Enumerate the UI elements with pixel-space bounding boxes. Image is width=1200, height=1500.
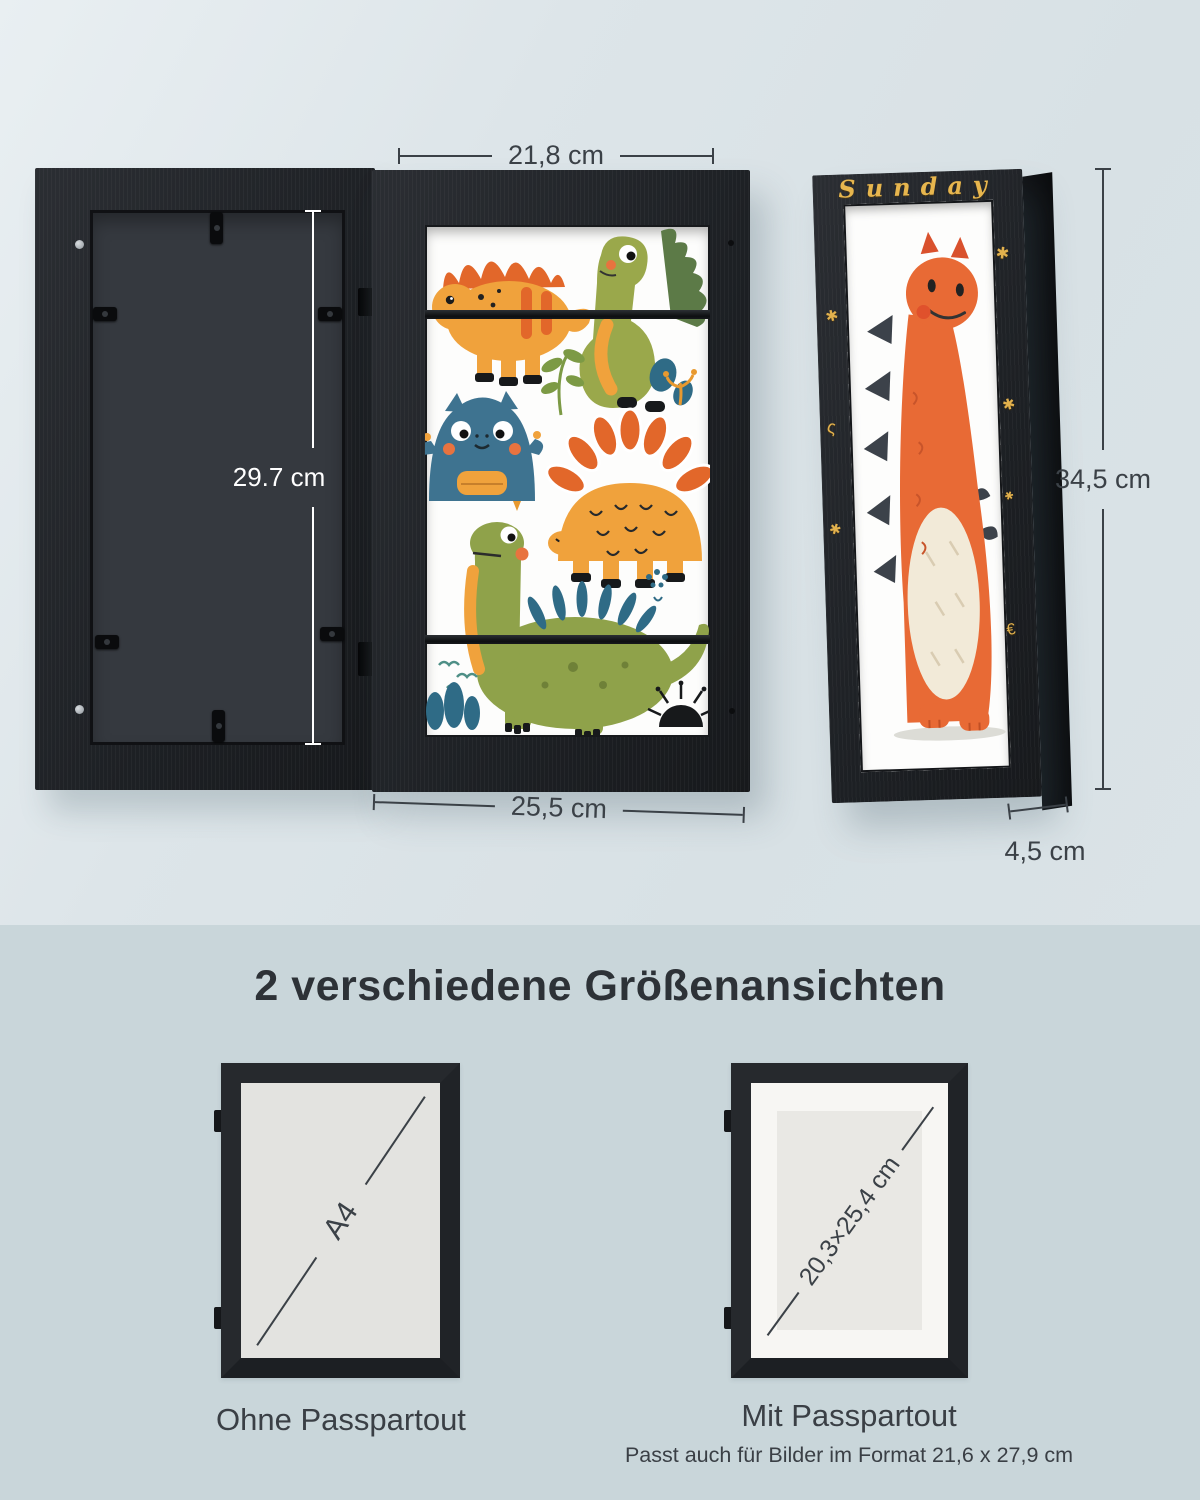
dimension-tick [743, 806, 746, 822]
dimension-tick [712, 148, 714, 164]
dimension-back-height: 29.7 cm [299, 210, 327, 745]
dimension-tick [305, 743, 321, 745]
dimension-inner-width: 21,8 cm [398, 140, 714, 171]
frame-side-front: Sunday ✱ ς ✱ ✱ ✱ ✱ € [812, 169, 1042, 803]
hinge-tab [724, 1110, 731, 1132]
clip-screw [327, 311, 333, 317]
dimension-line [1102, 170, 1104, 450]
clip-screw [216, 723, 222, 729]
dimension-inner-width-label: 21,8 cm [508, 140, 604, 171]
clip-screw [104, 639, 110, 645]
retainer-bar [425, 310, 710, 319]
a4-diagonal: A4 [243, 1087, 439, 1355]
frame-hole [729, 708, 735, 714]
gold-squiggle-doodle: ς [826, 416, 838, 438]
frame-without-mat: A4 [221, 1063, 460, 1378]
hinge-tab [724, 1307, 731, 1329]
dimension-line [623, 809, 743, 815]
caption-with-mat: Mit Passpartout [689, 1398, 1009, 1434]
retainer-bar [425, 635, 710, 644]
hinge-tab [214, 1110, 221, 1132]
caption-without-mat: Ohne Passpartout [171, 1402, 511, 1438]
magnet-pin [75, 240, 84, 249]
diagonal-line [364, 1096, 425, 1185]
gold-star-doodle: ✱ [1000, 394, 1017, 415]
dimension-depth [1007, 796, 1069, 819]
size-comparison-section: 2 verschiedene Größenansichten A4 Ohne P… [0, 925, 1200, 1500]
gold-star-doodle: ✱ [1003, 488, 1016, 503]
frame-hole [728, 240, 734, 246]
locking-clip [210, 212, 223, 244]
dimension-side-height: 34,5 cm [1088, 168, 1118, 790]
gold-euro-doodle: € [1005, 621, 1017, 640]
dimension-tick [1095, 788, 1111, 790]
dimension-line [375, 801, 495, 807]
dimension-line [1010, 804, 1066, 813]
a4-label: A4 [316, 1196, 365, 1245]
frame-with-mat: 20,3×25,4 cm [731, 1063, 968, 1378]
gold-star-doodle: ✱ [995, 243, 1010, 264]
dimension-side-height-label: 34,5 cm [1055, 464, 1151, 495]
frame-front [372, 170, 750, 792]
section-heading: 2 verschiedene Größenansichten [0, 962, 1200, 1011]
sunday-lettering: Sunday [812, 169, 1023, 208]
dimension-line [620, 155, 712, 157]
hinge-tab [214, 1307, 221, 1329]
clip-screw [214, 225, 220, 231]
dino-artwork [425, 225, 710, 737]
diagonal-line [256, 1257, 317, 1346]
dimension-line [1102, 509, 1104, 789]
dimension-outer-width-label: 25,5 cm [510, 791, 607, 825]
dimension-line [312, 507, 314, 743]
hero-section: 29.7 cm [0, 0, 1200, 925]
dimension-line [312, 212, 314, 448]
frame-artwork-area [425, 225, 710, 737]
gold-star-doodle: ✱ [827, 520, 843, 540]
dimension-depth-label: 4,5 cm [990, 836, 1100, 867]
locking-clip [212, 710, 225, 742]
note-with-mat: Passt auch für Bilder im Format 21,6 x 2… [624, 1443, 1074, 1468]
magnet-pin [75, 705, 84, 714]
locking-clip [95, 635, 119, 649]
clip-screw [329, 631, 335, 637]
frame-side-view: Sunday ✱ ς ✱ ✱ ✱ ✱ € [812, 169, 1042, 803]
dimension-outer-width: 25,5 cm [372, 786, 745, 830]
side-dino-artwork [843, 200, 1011, 772]
locking-clip [93, 307, 117, 321]
dimension-line [400, 155, 492, 157]
side-artwork-area [843, 200, 1011, 772]
gold-star-doodle: ✱ [824, 306, 841, 326]
dimension-back-height-label: 29.7 cm [233, 462, 326, 493]
clip-screw [102, 311, 108, 317]
